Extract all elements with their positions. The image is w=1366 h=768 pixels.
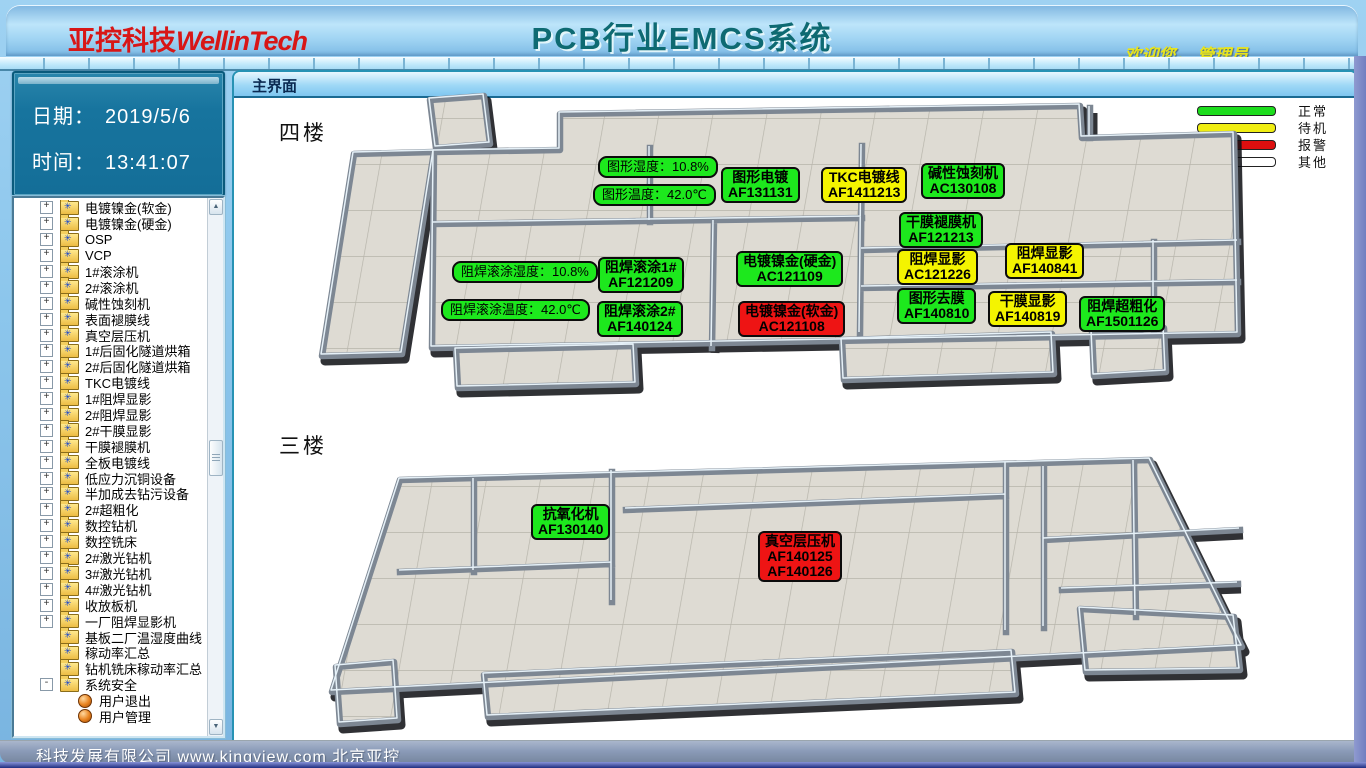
expand-plus-icon[interactable]: +: [40, 408, 53, 421]
folder-icon: [60, 614, 79, 628]
equipment-label-AF1501126[interactable]: 阻焊超粗化AF1501126: [1079, 296, 1165, 332]
folder-icon: [60, 439, 79, 453]
equipment-label-AF140810[interactable]: 图形去膜AF140810: [897, 288, 976, 324]
sensor-label-阻焊滚涂湿度：10.8%[interactable]: 阻焊滚涂湿度：10.8%: [452, 261, 598, 283]
time-label: 时间：: [32, 152, 95, 174]
header-bar: 亚控科技WellinTech PCB行业EMCS系统 欢迎您， 管理员: [6, 5, 1358, 56]
scroll-up-arrow-icon[interactable]: ▲: [209, 199, 223, 215]
sensor-label-图形湿度：10.8%[interactable]: 图形湿度：10.8%: [598, 156, 718, 178]
expand-plus-icon[interactable]: +: [40, 265, 53, 278]
equipment-label-AF130140[interactable]: 抗氧化机AF130140: [531, 504, 610, 540]
folder-icon: [60, 249, 79, 263]
expand-plus-icon[interactable]: +: [40, 583, 53, 596]
folder-icon: [60, 582, 79, 596]
date-label: 日期：: [32, 106, 95, 128]
folder-icon: [60, 662, 79, 676]
tree-scrollbar[interactable]: ▲ ▼: [207, 198, 223, 736]
divider-strip: [0, 57, 1366, 71]
footer-bar: 科技发展有限公司 www.kingview.com 北京亚控: [0, 740, 1366, 763]
expand-plus-icon[interactable]: +: [40, 249, 53, 262]
tree-item-label: 用户管理: [99, 707, 151, 726]
folder-icon: [60, 280, 79, 294]
equipment-label-AF121209[interactable]: 阻焊滚涂1#AF121209: [598, 257, 684, 293]
tree-item-OSP[interactable]: +OSP: [14, 232, 207, 248]
frame-right-band: [1354, 56, 1366, 762]
equipment-label-AF131131[interactable]: 图形电镀AF131131: [721, 167, 800, 203]
collapse-minus-icon[interactable]: -: [40, 678, 53, 691]
datetime-panel: 日期：2019/5/6 时间：13:41:07: [12, 71, 225, 197]
expand-plus-icon[interactable]: +: [40, 233, 53, 246]
folder-icon: [60, 519, 79, 533]
frame-bottom-strip: [0, 762, 1366, 768]
folder-icon: [60, 392, 79, 406]
folder-icon: [60, 471, 79, 485]
folder-icon: [60, 328, 79, 342]
folder-icon: [60, 344, 79, 358]
equipment-label-AC121108[interactable]: 电镀镍金(软金)AC121108: [738, 301, 845, 337]
folder-icon: [60, 646, 79, 660]
expand-plus-icon[interactable]: +: [40, 472, 53, 485]
expand-plus-icon[interactable]: +: [40, 615, 53, 628]
expand-plus-icon[interactable]: +: [40, 217, 53, 230]
folder-icon: [60, 503, 79, 517]
equipment-label-AF140124[interactable]: 阻焊滚涂2#AF140124: [597, 301, 683, 337]
folder-icon: [60, 630, 79, 644]
folder-icon: [60, 408, 79, 422]
expand-plus-icon[interactable]: +: [40, 392, 53, 405]
equipment-label-AF1411213[interactable]: TKC电镀线AF1411213: [821, 167, 907, 203]
equipment-label-AF140841[interactable]: 阻焊显影AF140841: [1005, 243, 1084, 279]
expand-plus-icon[interactable]: +: [40, 440, 53, 453]
folder-icon: [60, 423, 79, 437]
equipment-label-AC130108[interactable]: 碱性蚀刻机AC130108: [921, 163, 1005, 199]
expand-plus-icon[interactable]: +: [40, 487, 53, 500]
tree-item-用户管理[interactable]: 用户管理: [14, 709, 207, 725]
scada-screen: { "header": { "logo_cn": "亚控科技", "logo_e…: [0, 0, 1366, 768]
folder-icon: [60, 487, 79, 501]
floor-plan-4f: [321, 94, 1241, 393]
tree-item-label: OSP: [85, 232, 112, 247]
expand-plus-icon[interactable]: +: [40, 535, 53, 548]
expand-plus-icon[interactable]: +: [40, 376, 53, 389]
expand-plus-icon[interactable]: +: [40, 329, 53, 342]
expand-plus-icon[interactable]: +: [40, 344, 53, 357]
scroll-thumb[interactable]: [209, 440, 223, 476]
expand-plus-icon[interactable]: +: [40, 297, 53, 310]
date-value: 2019/5/6: [105, 106, 191, 128]
folder-icon: [60, 201, 79, 215]
sensor-label-图形温度：42.0℃[interactable]: 图形温度：42.0℃: [593, 184, 716, 206]
expand-plus-icon[interactable]: +: [40, 503, 53, 516]
user-action-icon: [78, 694, 92, 708]
user-action-icon: [78, 709, 92, 723]
tree-item-电镀镍金(硬金)[interactable]: +电镀镍金(硬金): [14, 216, 207, 232]
equipment-label-AC121226[interactable]: 阻焊显影AC121226: [897, 249, 978, 285]
expand-plus-icon[interactable]: +: [40, 551, 53, 564]
expand-plus-icon[interactable]: +: [40, 313, 53, 326]
tree-item-label: 电镀镍金(硬金): [85, 214, 172, 233]
expand-plus-icon[interactable]: +: [40, 567, 53, 580]
expand-plus-icon[interactable]: +: [40, 456, 53, 469]
navigation-tree-panel: +电镀镍金(软金)+电镀镍金(硬金)+OSP+VCP+1#滚涂机+2#滚涂机+碱…: [12, 196, 225, 738]
folder-icon: [60, 217, 79, 231]
folder-icon: [60, 312, 79, 326]
equipment-label-AF140126[interactable]: 真空层压机AF140125AF140126: [758, 531, 842, 582]
folder-icon: [60, 376, 79, 390]
scroll-down-arrow-icon[interactable]: ▼: [209, 719, 223, 735]
sensor-label-阻焊滚涂温度：42.0℃[interactable]: 阻焊滚涂温度：42.0℃: [441, 299, 590, 321]
expand-plus-icon[interactable]: +: [40, 519, 53, 532]
folder-icon: [60, 233, 79, 247]
expand-plus-icon[interactable]: +: [40, 281, 53, 294]
tree-list: +电镀镍金(软金)+电镀镍金(硬金)+OSP+VCP+1#滚涂机+2#滚涂机+碱…: [14, 200, 207, 736]
folder-icon: [60, 360, 79, 374]
folder-icon: [60, 455, 79, 469]
panel-gloss: [18, 77, 219, 84]
folder-icon: [60, 566, 79, 580]
expand-plus-icon[interactable]: +: [40, 599, 53, 612]
folder-icon: [60, 265, 79, 279]
tree-item-label: VCP: [85, 248, 112, 263]
equipment-label-AC121109[interactable]: 电镀镍金(硬金)AC121109: [736, 251, 843, 287]
folder-icon: [60, 678, 79, 692]
folder-icon: [60, 598, 79, 612]
folder-icon: [60, 551, 79, 565]
floor-plan-3f: [331, 458, 1245, 729]
folder-icon: [60, 535, 79, 549]
folder-icon: [60, 296, 79, 310]
expand-plus-icon[interactable]: +: [40, 360, 53, 373]
expand-plus-icon[interactable]: +: [40, 424, 53, 437]
time-value: 13:41:07: [105, 152, 191, 174]
expand-plus-icon[interactable]: +: [40, 201, 53, 214]
equipment-label-AF140819[interactable]: 干膜显影AF140819: [988, 291, 1067, 327]
equipment-label-AF121213[interactable]: 干膜褪膜机AF121213: [899, 212, 983, 248]
